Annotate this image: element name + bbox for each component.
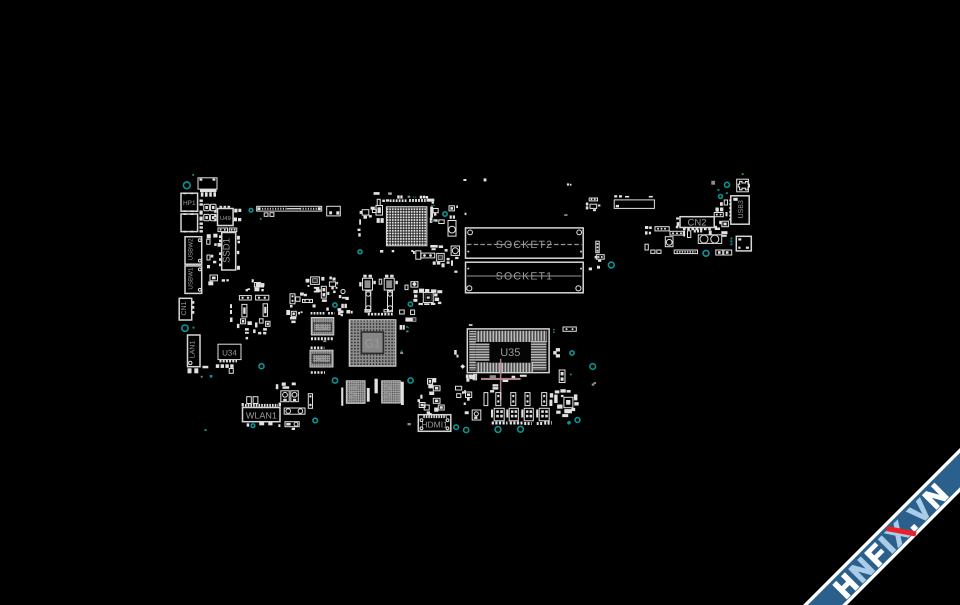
svg-text:USB3: USB3 [738, 200, 745, 218]
svg-text:HP1: HP1 [183, 200, 196, 207]
svg-text:SOCKET2: SOCKET2 [496, 239, 553, 251]
svg-text:CN1: CN1 [181, 301, 188, 315]
svg-text:U49: U49 [220, 215, 232, 222]
svg-text:CN2: CN2 [687, 218, 706, 229]
svg-text:U35: U35 [500, 347, 520, 359]
svg-text:HDMI1: HDMI1 [421, 419, 448, 429]
svg-text:M1: M1 [348, 385, 359, 399]
svg-text:AK: AK [315, 354, 327, 364]
svg-text:SSD1: SSD1 [222, 238, 233, 263]
svg-text:SOCKET1: SOCKET1 [496, 270, 553, 282]
svg-text:WLAN1: WLAN1 [246, 410, 277, 420]
svg-text:M2: M2 [383, 385, 394, 399]
svg-text:U34: U34 [222, 349, 237, 358]
svg-text:USBW1: USBW1 [188, 267, 195, 290]
svg-text:M4: M4 [316, 323, 329, 333]
svg-text:USBW2: USBW2 [188, 238, 195, 261]
svg-text:LAN1: LAN1 [189, 341, 196, 359]
svg-text:G1: G1 [365, 336, 381, 350]
